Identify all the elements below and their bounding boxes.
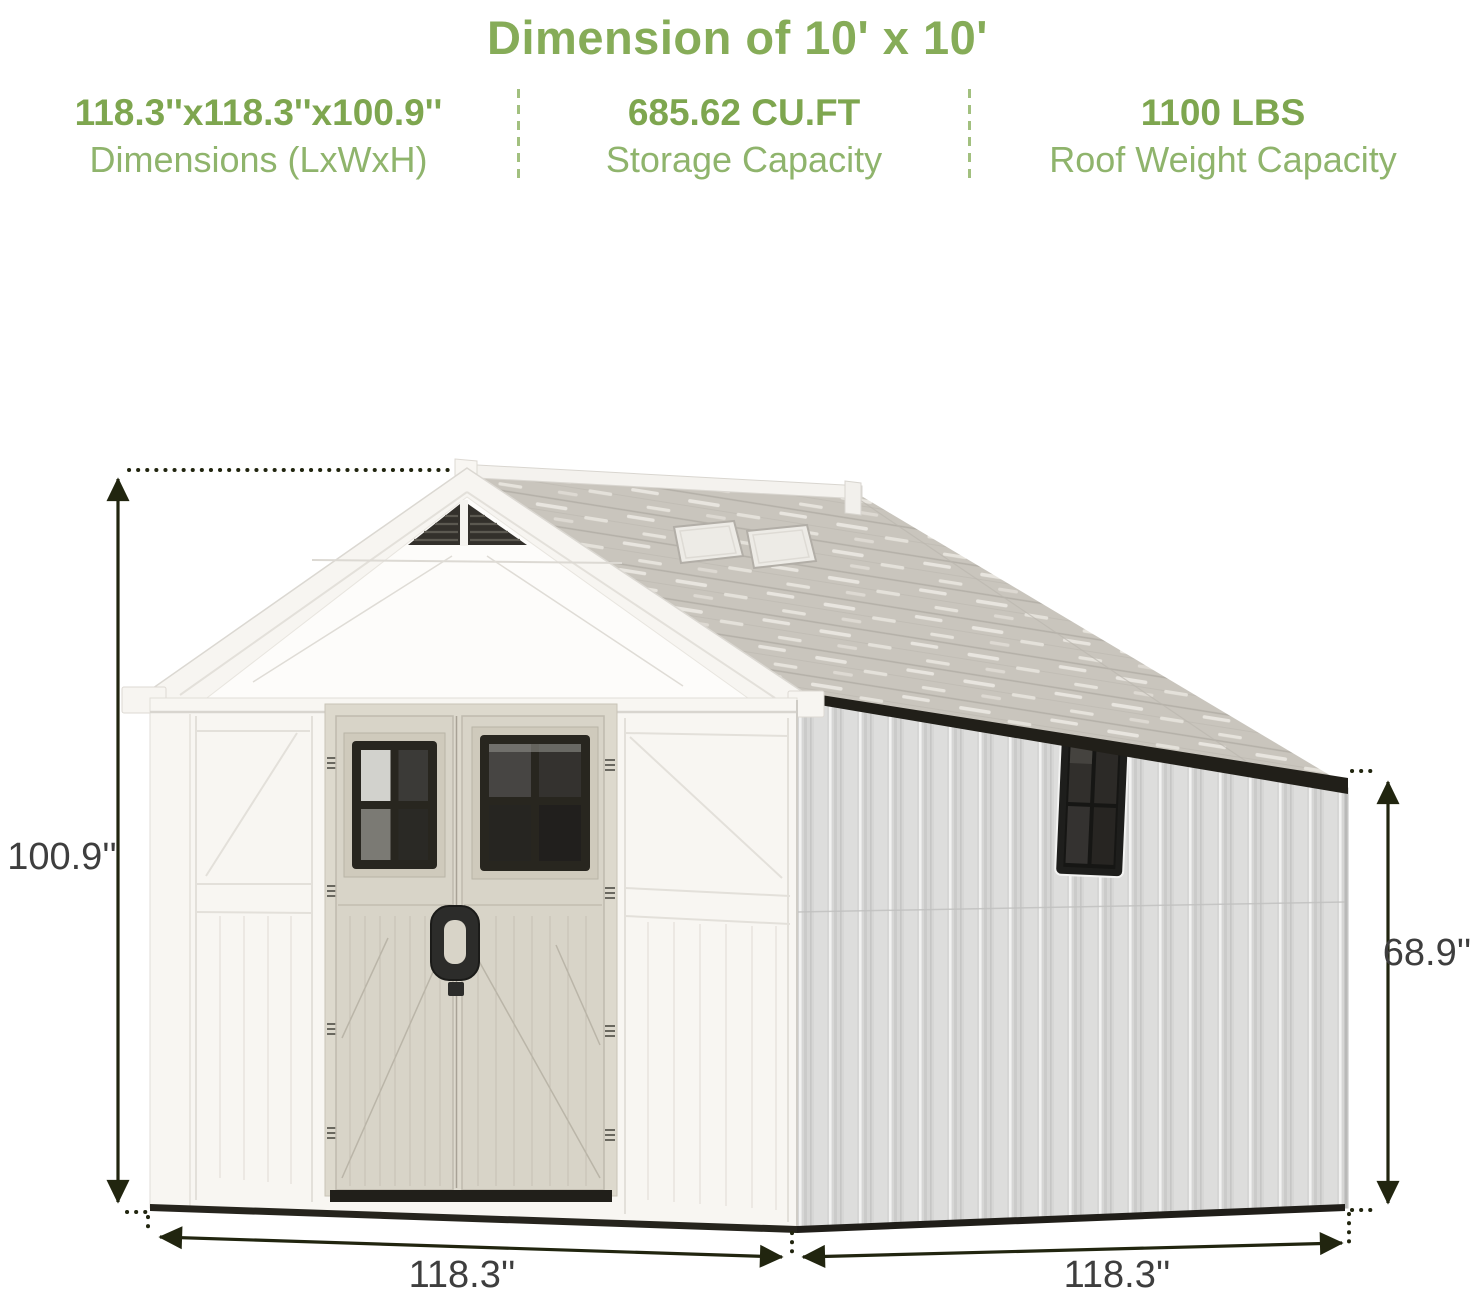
spec-row: 118.3''x118.3''x100.9'' Dimensions (LxWx…	[0, 89, 1475, 183]
spec-storage-label: Storage Capacity	[520, 138, 968, 181]
spec-dimensions: 118.3''x118.3''x100.9'' Dimensions (LxWx…	[0, 91, 517, 181]
shed-diagram: 100.9'' 68.9'' 118.3'' 118.3''	[0, 440, 1475, 1294]
door-window-right	[472, 727, 598, 879]
front-width-label: 118.3''	[409, 1254, 516, 1294]
page: Dimension of 10' x 10' 118.3''x118.3''x1…	[0, 0, 1475, 183]
spec-storage: 685.62 CU.FT Storage Capacity	[520, 91, 968, 181]
shed-illustration	[122, 459, 1348, 1233]
spec-dimensions-value: 118.3''x118.3''x100.9''	[0, 91, 517, 135]
skylight-1	[674, 521, 743, 563]
skylight-2	[747, 525, 816, 568]
side-window	[1055, 735, 1129, 878]
shed-svg: 100.9'' 68.9'' 118.3'' 118.3''	[0, 440, 1475, 1294]
door-window-left	[344, 733, 445, 877]
spec-roof-weight-label: Roof Weight Capacity	[971, 138, 1475, 181]
spec-roof-weight: 1100 LBS Roof Weight Capacity	[971, 91, 1475, 181]
spec-dimensions-label: Dimensions (LxWxH)	[0, 138, 517, 181]
front-height-label: 100.9''	[7, 836, 117, 878]
door-threshold	[330, 1190, 612, 1202]
spec-storage-value: 685.62 CU.FT	[520, 91, 968, 135]
spec-roof-weight-value: 1100 LBS	[971, 91, 1475, 135]
door-assembly	[325, 704, 617, 1202]
gable-vent-post	[460, 500, 468, 546]
page-title: Dimension of 10' x 10'	[0, 0, 1475, 65]
side-width-label: 118.3''	[1064, 1254, 1171, 1294]
side-height-label: 68.9''	[1383, 932, 1471, 974]
